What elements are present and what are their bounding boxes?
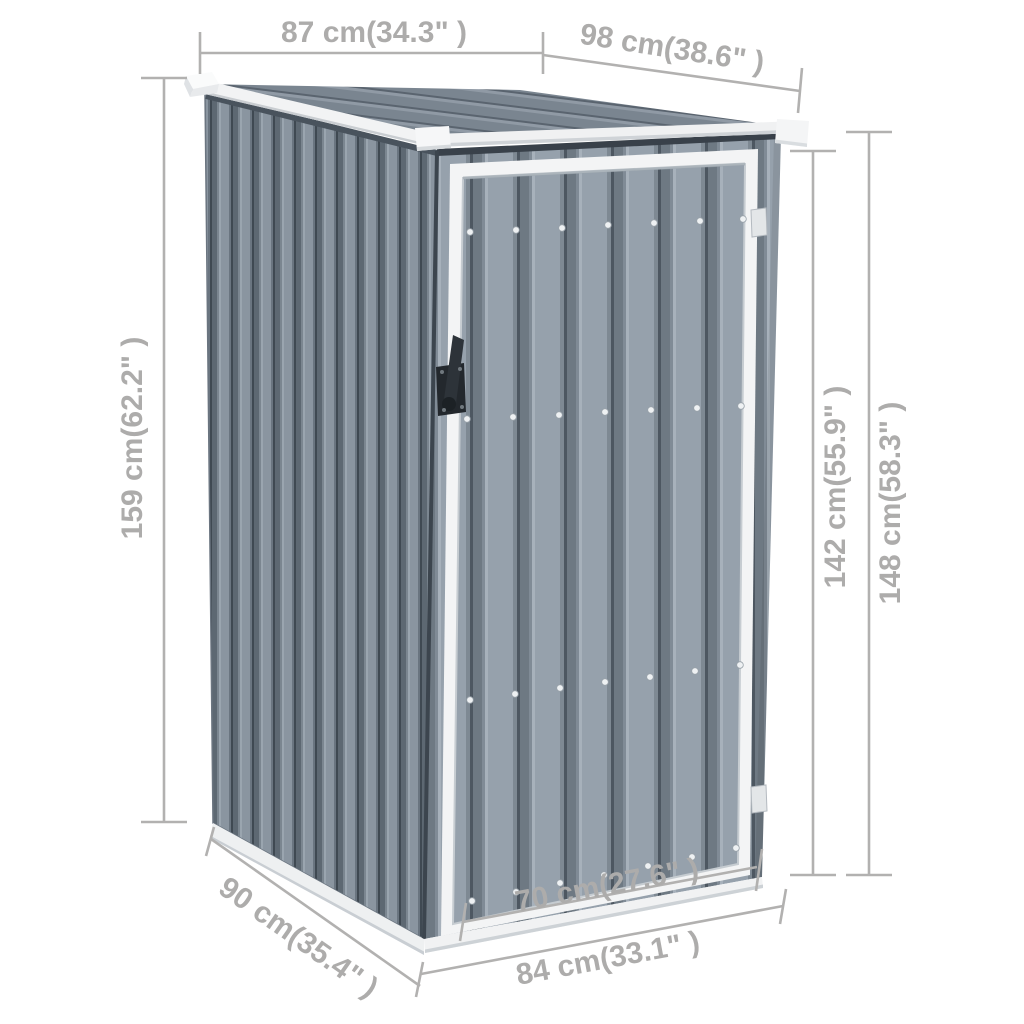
product-diagram: 87 cm(34.3" ) 98 cm(38.6" ) 159 cm(62.2"… (0, 0, 1024, 1024)
roof-cap-front-right (775, 119, 809, 147)
dimension-label-height-right: 148 cm(58.3" ) (874, 402, 908, 605)
hinge-bottom (751, 785, 767, 813)
left-wall (205, 93, 437, 939)
hinge-top (751, 208, 767, 237)
door-panel (453, 164, 745, 924)
shed (184, 72, 809, 955)
dimension-label-roof-depth-top: 87 cm(34.3" ) (281, 16, 467, 50)
dimension-label-height-left: 159 cm(62.2" ) (116, 337, 150, 540)
roof-cap-peak (184, 72, 219, 97)
door (436, 149, 767, 936)
dimension-label-height-door: 142 cm(55.9" ) (819, 386, 853, 589)
shed-illustration (0, 0, 1024, 1024)
roof-cap-front-left (415, 126, 451, 151)
